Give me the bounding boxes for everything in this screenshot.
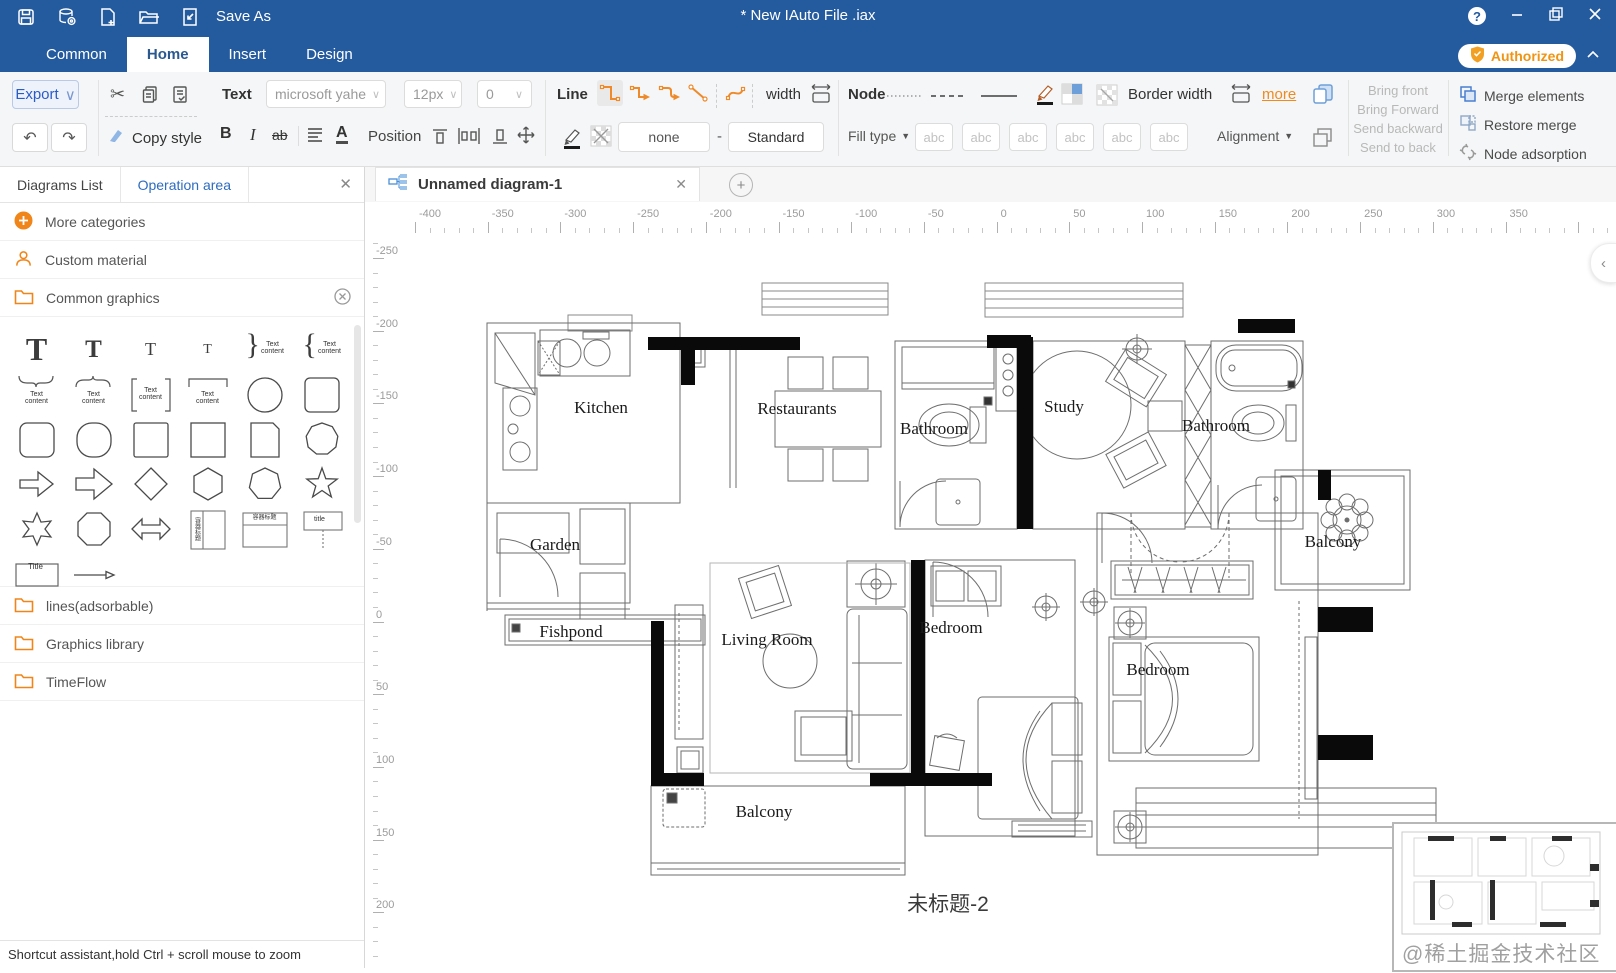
sidebar-item-common-graphics[interactable]: Common graphics [0, 279, 364, 317]
shape-rounded-square[interactable] [297, 373, 347, 416]
restore-merge-icon [1458, 113, 1478, 136]
caret-down-icon: ▼ [901, 131, 910, 141]
room-label-bedroom-1[interactable]: Bedroom [919, 618, 982, 637]
watermark: @稀土掘金技术社区 [1402, 938, 1600, 968]
shield-icon [1470, 46, 1485, 66]
merge-elements-button[interactable]: Merge elements [1458, 84, 1584, 107]
distribute-icon[interactable] [458, 126, 480, 146]
italic-button[interactable]: I [250, 125, 256, 145]
minimap-preview [1394, 824, 1614, 946]
duplicate-icon[interactable] [1310, 124, 1336, 150]
brush-icon [108, 127, 126, 150]
bring-forward-button[interactable]: Bring Forward [1352, 100, 1444, 119]
sidebar-item-lines-adsorbable[interactable]: lines(adsorbable) [0, 587, 364, 625]
close-category-icon[interactable] [334, 288, 351, 308]
copy-icon[interactable] [140, 84, 160, 104]
import-file-icon[interactable] [180, 7, 200, 27]
font-size-select[interactable]: 12px∨ [404, 80, 462, 108]
shape-brace-right[interactable]: }Text content [240, 328, 290, 371]
node-fill-color-icon[interactable] [1061, 83, 1083, 105]
minimap[interactable]: @稀土掘金技术社区 [1392, 822, 1616, 972]
chevron-up-icon[interactable] [1586, 48, 1600, 63]
shape-arrow-right-thin[interactable] [12, 463, 62, 506]
shape-nonagon[interactable] [297, 418, 347, 461]
line-color-icon[interactable] [560, 126, 584, 150]
caret-down-icon: ∨ [515, 88, 523, 101]
line-straight-icon[interactable] [685, 80, 711, 106]
caret-down-icon: ▼ [1284, 131, 1293, 141]
copy-style-button[interactable]: Copy style [108, 127, 202, 150]
panel-tabs: Diagrams List Operation area ✕ [0, 167, 364, 203]
shape-arrow-leftright[interactable] [126, 508, 176, 551]
line-rounded-elbow-icon[interactable] [656, 80, 682, 106]
save-as-button[interactable]: Save As [216, 8, 271, 25]
caret-down-icon: ∨ [372, 88, 380, 101]
ruler-corner [365, 202, 400, 233]
strikethrough-button[interactable]: ab [272, 127, 288, 143]
node-style-abc-6[interactable]: abc [1150, 123, 1188, 151]
shape-text-xl[interactable]: T [12, 328, 62, 371]
text-section-label: Text [222, 86, 252, 103]
shape-callout-title[interactable]: title [297, 508, 347, 551]
arrange-group: Bring front Bring Forward Send backward … [1352, 81, 1444, 157]
char-spacing-select[interactable]: 0∨ [477, 80, 532, 108]
authorized-badge[interactable]: Authorized [1458, 44, 1576, 68]
align-bottom-icon[interactable] [490, 126, 510, 146]
node-style-abc-2[interactable]: abc [962, 123, 1000, 151]
title-bar: Save As * New IAuto File .iax ? [0, 0, 1616, 33]
shape-hexagon[interactable] [183, 463, 233, 506]
shape-arrow-right[interactable] [69, 463, 119, 506]
shape-square-soft[interactable] [126, 418, 176, 461]
open-folder-icon[interactable] [138, 7, 160, 27]
sidebar-item-more-categories[interactable]: More categories [0, 203, 364, 241]
close-tab-icon[interactable]: ✕ [675, 176, 687, 193]
align-middle-icon[interactable] [430, 126, 450, 146]
fill-type-select[interactable]: Fill type▼ [848, 128, 910, 144]
undo-button[interactable]: ↶ [12, 123, 48, 152]
bring-front-button[interactable]: Bring front [1352, 81, 1444, 100]
shape-text-lg[interactable]: T [69, 328, 119, 371]
line-elbow-icon[interactable] [597, 80, 623, 106]
node-style-abc-1[interactable]: abc [915, 123, 953, 151]
add-diagram-button[interactable]: + [729, 173, 753, 197]
folder-icon [14, 596, 34, 616]
room-label-fishpond[interactable]: Fishpond [539, 622, 603, 641]
shape-square[interactable] [183, 418, 233, 461]
shape-topbracket-text[interactable]: Text content [183, 373, 233, 416]
person-icon [14, 249, 33, 271]
shape-heptagon[interactable] [240, 463, 290, 506]
border-color-icon[interactable] [1033, 82, 1057, 106]
sidebar-item-graphics-library[interactable]: Graphics library [0, 625, 364, 663]
line-elbow-arrow-icon[interactable] [627, 80, 653, 106]
border-width-label: Border width [1128, 86, 1212, 103]
stretch-width-icon[interactable] [808, 81, 834, 107]
alignment-select[interactable]: Alignment▼ [1217, 128, 1293, 144]
position-label: Position [368, 128, 421, 145]
send-to-back-button[interactable]: Send to back [1352, 138, 1444, 157]
line-fill-select[interactable]: none [618, 122, 710, 152]
text-align-icon[interactable] [306, 125, 324, 143]
shape-star-5[interactable] [297, 463, 347, 506]
shape-star-6[interactable] [12, 508, 62, 551]
shape-text-md[interactable]: T [126, 328, 176, 371]
font-family-select[interactable]: microsoft yahe∨ [266, 80, 386, 108]
room-label-balcony-bottom[interactable]: Balcony [736, 802, 793, 821]
room-label-bathroom-1[interactable]: Bathroom [900, 419, 968, 438]
document-tab[interactable]: Unnamed diagram-1 ✕ [375, 167, 700, 201]
minimize-icon[interactable] [1510, 7, 1524, 26]
menu-tab-common[interactable]: Common [26, 37, 127, 72]
bold-button[interactable]: B [220, 125, 232, 143]
node-solid-line-option[interactable] [980, 92, 1018, 100]
line-curve-icon[interactable] [722, 80, 748, 106]
plus-circle-icon [14, 211, 33, 233]
shape-snip-corner-square[interactable] [240, 418, 290, 461]
tab-diagrams-list[interactable]: Diagrams List [0, 167, 121, 202]
left-panel: Diagrams List Operation area ✕ More cate… [0, 167, 365, 968]
export-database-icon[interactable] [56, 7, 78, 27]
room-label-living-room[interactable]: Living Room [721, 630, 812, 649]
node-style-abc-5[interactable]: abc [1103, 123, 1141, 151]
menu-tab-insert[interactable]: Insert [209, 37, 287, 72]
caret-down-icon: ∨ [449, 88, 457, 101]
new-file-icon[interactable] [98, 7, 118, 27]
send-backward-button[interactable]: Send backward [1352, 119, 1444, 138]
window-title: * New IAuto File .iax [740, 7, 875, 24]
shape-container-horizontal-title[interactable]: 容器标题 [240, 508, 290, 551]
canvas-region: Unnamed diagram-1 ✕ + -400-350-300-250-2… [365, 167, 1616, 968]
shape-underbrace-text[interactable]: Text content [12, 373, 62, 416]
room-label-balcony-right[interactable]: Balcony [1305, 532, 1362, 551]
shape-rounded-square-2[interactable] [12, 418, 62, 461]
room-label-study[interactable]: Study [1044, 397, 1084, 416]
caret-down-icon: ∨ [65, 86, 76, 104]
help-icon[interactable]: ? [1468, 7, 1486, 25]
restore-merge-button[interactable]: Restore merge [1458, 113, 1577, 136]
node-dotted-line-option[interactable] [886, 92, 922, 100]
folder-icon [14, 288, 34, 308]
font-color-button[interactable]: A [336, 124, 348, 144]
folder-icon [14, 672, 34, 692]
line-style-select[interactable]: Standard [728, 122, 824, 152]
close-icon[interactable] [1588, 7, 1602, 26]
diagram-tree-icon [388, 173, 408, 196]
document-tab-bar: Unnamed diagram-1 ✕ + [365, 167, 1616, 203]
node-adsorption-icon [1458, 142, 1478, 165]
menu-tab-home[interactable]: Home [127, 37, 209, 72]
line-section-label: Line [557, 86, 588, 103]
room-label-garden[interactable]: Garden [530, 535, 581, 554]
shape-palette: T T T T }Text content {Text content Text… [0, 317, 364, 587]
h-ruler: -400-350-300-250-200-150-100-50050100150… [400, 202, 1616, 234]
shape-container-vertical-title[interactable]: 容器标题 [183, 508, 233, 551]
cut-icon[interactable]: ✂ [110, 84, 125, 105]
border-stretch-icon[interactable] [1228, 81, 1254, 107]
walls [648, 319, 1373, 786]
dash-separator: - [717, 128, 722, 145]
node-section-label: Node [848, 86, 886, 103]
shape-circle[interactable] [240, 373, 290, 416]
panel-close-icon[interactable]: ✕ [339, 175, 352, 193]
border-transparent-icon[interactable] [1096, 84, 1118, 106]
room-label-restaurants[interactable]: Restaurants [757, 399, 836, 418]
shape-text-sm[interactable]: T [183, 328, 233, 371]
palette-scrollbar[interactable] [354, 325, 361, 523]
room-label-bathroom-2[interactable]: Bathroom [1182, 416, 1250, 435]
shape-brackets-text[interactable]: Text content [126, 373, 176, 416]
menu-tab-design[interactable]: Design [286, 37, 373, 72]
redo-button[interactable]: ↷ [51, 123, 87, 152]
paste-icon[interactable] [170, 84, 190, 104]
shape-octagon[interactable] [69, 508, 119, 551]
sidebar-item-custom-material[interactable]: Custom material [0, 241, 364, 279]
v-ruler: -250-200-150-100-50050100150200 [365, 233, 401, 968]
sidebar-item-timeflow[interactable]: TimeFlow [0, 663, 364, 701]
room-label-kitchen[interactable]: Kitchen [574, 398, 628, 417]
tab-operation-area[interactable]: Operation area [121, 167, 249, 202]
shape-squircle[interactable] [69, 418, 119, 461]
node-adsorption-button[interactable]: Node adsorption [1458, 142, 1587, 165]
folder-icon [14, 634, 34, 654]
menu-bar: Common Home Insert Design [0, 33, 1616, 72]
shape-overbrace-text[interactable]: Text content [69, 373, 119, 416]
move-icon[interactable] [516, 125, 536, 145]
more-link[interactable]: more [1262, 86, 1296, 103]
save-icon[interactable] [16, 7, 36, 27]
line-width-label: width [766, 86, 801, 103]
shape-brace-left[interactable]: {Text content [297, 328, 347, 371]
node-style-abc-3[interactable]: abc [1009, 123, 1047, 151]
node-style-abc-4[interactable]: abc [1056, 123, 1094, 151]
node-dashed-line-option[interactable] [930, 92, 968, 100]
shortcut-assistant-bar: Shortcut assistant,hold Ctrl + scroll mo… [0, 940, 365, 968]
export-button[interactable]: Export∨ [12, 80, 79, 109]
diagram-title[interactable]: 未标题-2 [907, 893, 989, 916]
restore-window-icon[interactable] [1548, 6, 1564, 27]
room-label-bedroom-2[interactable]: Bedroom [1126, 660, 1189, 679]
transparent-fill-icon[interactable] [590, 125, 612, 147]
shape-diamond[interactable] [126, 463, 176, 506]
toolbar: Export∨ ↶ ↷ ✂ Text microsoft yahe∨ 12px∨… [0, 72, 1616, 167]
merge-elements-icon [1458, 84, 1478, 107]
copy-element-icon[interactable] [1310, 81, 1336, 107]
